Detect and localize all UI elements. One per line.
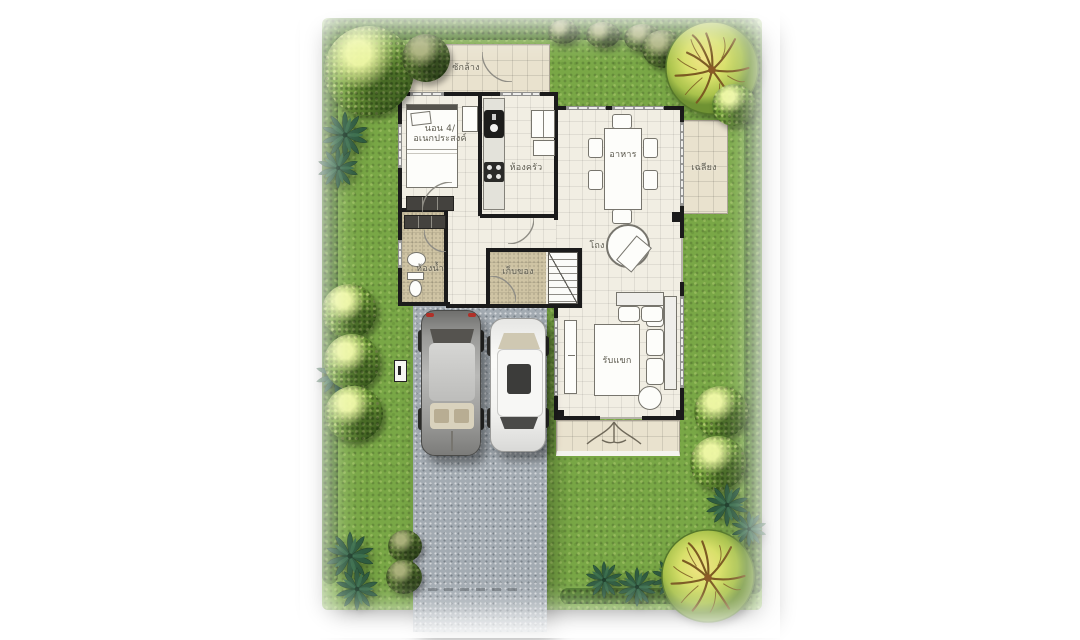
dining-label: อาหาร (609, 147, 636, 161)
wall (478, 96, 482, 216)
dining-chair (643, 138, 658, 158)
living-label: รับแขก (603, 353, 632, 367)
kitchen-cabinet (533, 140, 555, 156)
wall (398, 302, 450, 306)
sunroof (507, 364, 531, 394)
tree (712, 84, 756, 126)
window (612, 106, 664, 110)
sofa-back (664, 296, 677, 390)
window (398, 240, 402, 268)
white-car (490, 318, 546, 452)
floor-plan-image: ซักล้าง นอน 4/ อเนกประสงค์ ห้องครัว อาหา… (0, 0, 1080, 640)
refrigerator (531, 110, 555, 138)
bed (406, 104, 458, 188)
door-arc (490, 276, 516, 302)
wall (578, 250, 582, 306)
door-arc (508, 218, 534, 244)
hood-crease (451, 431, 453, 451)
sofa-cushion (618, 306, 640, 322)
window (398, 124, 402, 168)
car-roof (497, 349, 543, 417)
porch-pillar (556, 410, 564, 418)
window (410, 92, 444, 96)
shrub (548, 20, 578, 44)
porch-door-threshold (600, 417, 642, 419)
kitchen-label: ห้องครัว (510, 160, 543, 174)
dining-chair (588, 138, 603, 158)
shrub (388, 530, 422, 562)
taillight (468, 313, 476, 317)
car-roof (429, 343, 475, 401)
shrub (386, 560, 422, 594)
windshield (498, 333, 540, 349)
window (566, 106, 606, 110)
door-arc (422, 182, 452, 212)
dining-chair (588, 170, 603, 190)
toilet-bowl (409, 280, 422, 297)
stove (484, 162, 504, 182)
sofa-cushion (646, 329, 664, 356)
sofa-chaise-back (616, 292, 664, 306)
window (680, 122, 684, 206)
driveway-stop-line (428, 588, 522, 591)
kitchen-sink (484, 110, 504, 138)
rear-window (430, 329, 474, 343)
porch-pillar (676, 410, 684, 418)
tree (322, 284, 377, 338)
terrace-door-threshold (681, 238, 683, 282)
gray-car (421, 310, 481, 456)
wall (446, 304, 582, 308)
porch-ornament (584, 420, 644, 448)
bathroom-label: ห้องน้ำ (416, 261, 444, 275)
rear-window (500, 417, 538, 429)
bedroom-label: นอน 4/ อเนกประสงค์ (413, 124, 466, 145)
tree (694, 386, 748, 438)
window (680, 296, 684, 388)
shrub (586, 22, 620, 48)
sofa-cushion (641, 306, 663, 322)
side-table (638, 386, 662, 410)
window (500, 92, 540, 96)
console-table (564, 320, 577, 394)
tree (324, 334, 380, 390)
terrace-pillar (672, 212, 682, 222)
dining-table (604, 128, 642, 210)
taillight (426, 313, 434, 317)
dining-chair (612, 114, 632, 129)
terrace-label: เฉลียง (691, 160, 716, 174)
hall-label: โถง (589, 238, 604, 252)
branched-tree (660, 528, 756, 624)
staircase (548, 252, 578, 304)
sofa-cushion (646, 358, 664, 385)
gate-post (394, 360, 407, 382)
palm-plant (334, 566, 380, 612)
bathroom-vanity (404, 215, 446, 229)
palm-plant (316, 146, 360, 190)
tree (324, 26, 414, 116)
door-arc (482, 52, 512, 82)
tree (325, 386, 383, 442)
dining-chair (643, 170, 658, 190)
tree (402, 34, 450, 82)
dining-chair (612, 209, 632, 224)
laundry-label: ซักล้าง (452, 60, 480, 74)
windshield (430, 403, 474, 429)
door-arc (424, 230, 446, 252)
window (554, 318, 558, 396)
